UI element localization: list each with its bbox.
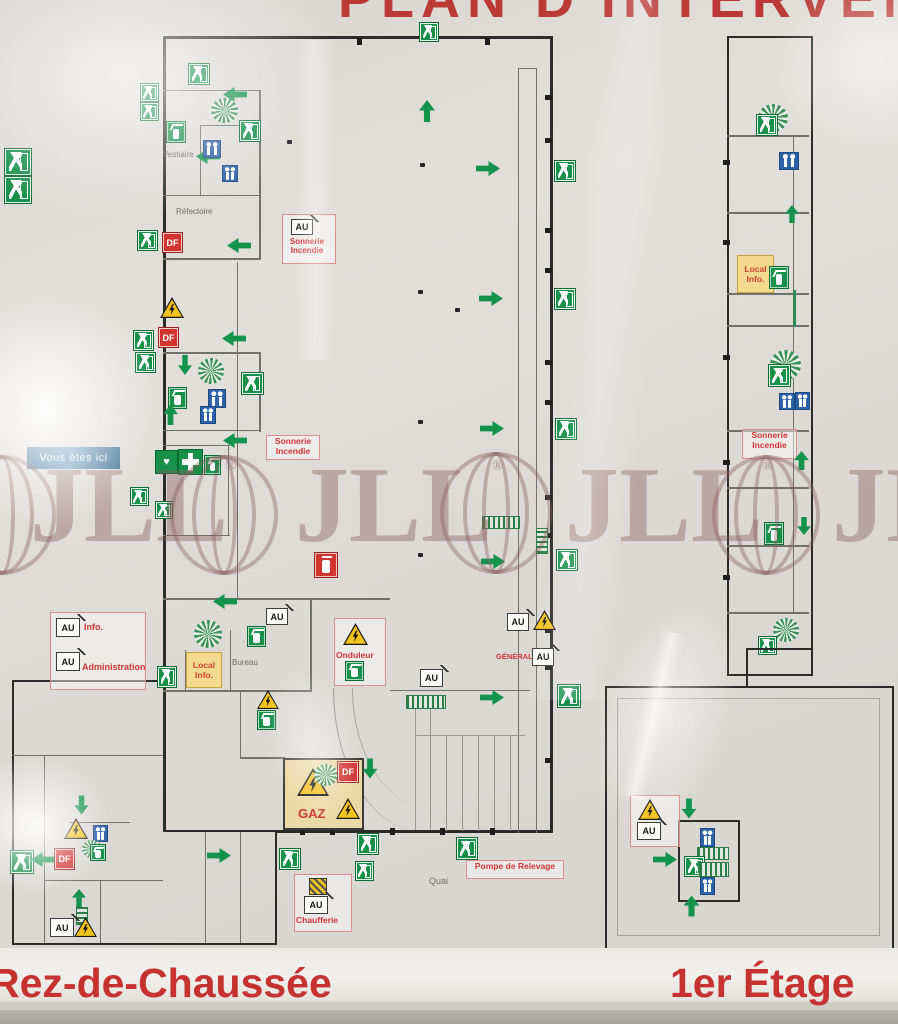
green-arrow-up-icon bbox=[71, 889, 87, 907]
wall-thin bbox=[44, 755, 45, 943]
wall-thin bbox=[163, 258, 261, 260]
spiral-staircase-icon bbox=[314, 764, 338, 786]
corridor-line bbox=[536, 68, 537, 833]
extinguisher-icon bbox=[257, 710, 276, 730]
evacuation-plan-photo: PLAN D'INTERVENTION bbox=[0, 0, 898, 1024]
wall-segment bbox=[746, 648, 748, 688]
door-tick bbox=[545, 268, 552, 273]
green-arrow-right-icon bbox=[207, 847, 231, 864]
door-tick bbox=[485, 38, 490, 45]
exit-sign-icon bbox=[4, 148, 32, 176]
fire-alarm-text: Sonnerie Incendie bbox=[285, 237, 329, 255]
exit-sign-icon bbox=[555, 418, 577, 440]
room-label: Bureau bbox=[232, 658, 258, 667]
jll-globe-watermark bbox=[170, 455, 278, 575]
floor-dot bbox=[420, 163, 425, 167]
table-edge bbox=[0, 1010, 898, 1024]
wall-thin bbox=[12, 755, 163, 756]
au-callpoint-badge: AU bbox=[507, 613, 529, 631]
dock-line bbox=[415, 735, 525, 736]
room-label: Vestiaire bbox=[163, 150, 194, 159]
green-arrow-left-icon bbox=[227, 237, 251, 254]
df-damper-badge: DF bbox=[54, 848, 75, 870]
door-tick bbox=[723, 160, 730, 165]
door-tick bbox=[723, 575, 730, 580]
wall-thin bbox=[163, 195, 260, 196]
general-text: GÉNÉRAL bbox=[496, 652, 533, 661]
green-arrow-right-icon bbox=[480, 689, 504, 706]
door-tick bbox=[545, 400, 552, 405]
exit-sign-icon bbox=[419, 22, 439, 42]
exit-sign-icon bbox=[157, 666, 177, 688]
crease-highlight bbox=[523, 0, 687, 700]
au-callpoint-badge: AU bbox=[637, 822, 661, 840]
local-info-label: Local Info. bbox=[186, 652, 222, 688]
dock-line bbox=[494, 735, 495, 831]
extinguisher-icon bbox=[90, 844, 106, 861]
exit-sign-icon bbox=[279, 848, 301, 870]
administration-text: Administration bbox=[82, 662, 146, 672]
exit-sign-icon bbox=[4, 176, 32, 204]
exit-sign-icon bbox=[756, 114, 778, 136]
pump-label: Pompe de Relevage bbox=[466, 860, 564, 879]
door-tick bbox=[490, 828, 495, 835]
floor-dot bbox=[287, 140, 292, 144]
door-tick bbox=[357, 38, 362, 45]
door-tick bbox=[440, 828, 445, 835]
wc-icon bbox=[93, 825, 108, 842]
wall-segment bbox=[163, 830, 277, 832]
corridor-line bbox=[518, 68, 519, 833]
wall-thin bbox=[163, 598, 390, 600]
wc-icon bbox=[779, 152, 799, 170]
door-tick bbox=[723, 240, 730, 245]
wall-thin bbox=[230, 630, 231, 690]
door-tick bbox=[545, 360, 552, 365]
au-callpoint-badge: AU bbox=[532, 648, 554, 666]
wall-segment bbox=[12, 680, 14, 945]
exit-sign-icon bbox=[456, 837, 478, 860]
green-arrow-up-icon bbox=[418, 100, 436, 122]
door-tick bbox=[545, 228, 552, 233]
exit-sign-icon bbox=[758, 636, 777, 655]
wall-thin bbox=[240, 757, 285, 759]
spiral-staircase-icon bbox=[194, 620, 222, 648]
spiral-staircase-icon bbox=[198, 358, 224, 384]
floor-dot bbox=[455, 308, 460, 312]
exit-sign-icon bbox=[554, 288, 576, 310]
wall-thin bbox=[163, 90, 260, 91]
wc-icon bbox=[700, 877, 715, 895]
wall-segment bbox=[12, 943, 277, 945]
wc-icon bbox=[779, 393, 795, 410]
au-callpoint-badge: AU bbox=[266, 608, 288, 625]
exit-sign-icon bbox=[241, 372, 264, 395]
wall-thin bbox=[310, 598, 312, 692]
au-callpoint-badge: AU bbox=[56, 618, 80, 637]
green-arrow-left-icon bbox=[31, 851, 55, 868]
door-tick bbox=[723, 355, 730, 360]
green-arrow-right-icon bbox=[479, 290, 503, 307]
dock-line bbox=[510, 735, 511, 831]
door-tick bbox=[545, 758, 552, 763]
wall-segment bbox=[275, 830, 277, 945]
wall-thin bbox=[727, 325, 809, 327]
exit-sign-icon bbox=[140, 102, 159, 121]
exit-sign-icon bbox=[133, 330, 154, 351]
ups-text: Onduleur bbox=[336, 650, 374, 660]
boiler-text: Chaufferie bbox=[296, 915, 338, 925]
ground-floor-label: Rez-de-Chaussée bbox=[0, 960, 332, 1007]
exit-sign-icon bbox=[137, 230, 158, 251]
room-label: Quai bbox=[429, 876, 448, 886]
staircase-icon bbox=[699, 862, 729, 877]
dock-line bbox=[462, 735, 463, 831]
jll-globe-watermark bbox=[440, 452, 552, 574]
green-arrow-right-icon bbox=[476, 160, 500, 177]
wall-thin bbox=[240, 832, 241, 943]
exit-sign-icon bbox=[355, 861, 374, 881]
wall-thin bbox=[163, 430, 260, 431]
info-text: Info. bbox=[84, 622, 103, 632]
wc-icon bbox=[203, 140, 221, 158]
dock-line bbox=[478, 735, 479, 831]
df-damper-badge: DF bbox=[337, 761, 359, 783]
exit-sign-icon bbox=[768, 364, 791, 387]
gas-text: GAZ bbox=[298, 806, 325, 821]
green-arrow-right-icon bbox=[480, 420, 504, 437]
wc-icon bbox=[700, 828, 715, 847]
df-damper-badge: DF bbox=[162, 232, 183, 253]
staircase-icon bbox=[406, 695, 446, 709]
wc-icon bbox=[222, 165, 238, 182]
dock-line bbox=[446, 735, 447, 831]
exit-sign-icon bbox=[554, 160, 576, 182]
wall-thin bbox=[205, 832, 206, 943]
wc-icon bbox=[200, 406, 216, 424]
green-arrow-down-icon bbox=[177, 355, 193, 375]
room-label: Réfectoire bbox=[176, 207, 212, 216]
extinguisher-icon bbox=[769, 266, 789, 289]
exit-sign-icon bbox=[10, 850, 34, 874]
door-tick bbox=[390, 828, 395, 835]
wall-thin bbox=[163, 690, 312, 692]
green-arrow-left-icon bbox=[222, 330, 246, 347]
first-floor-label: 1er Étage bbox=[670, 960, 855, 1007]
exit-sign-icon bbox=[557, 684, 581, 708]
wall-thin bbox=[70, 822, 130, 823]
wall-thin bbox=[163, 352, 260, 354]
exit-sign-icon bbox=[140, 83, 159, 102]
extinguisher-icon bbox=[247, 626, 266, 647]
wall-thin bbox=[200, 125, 201, 195]
warning-electric-icon bbox=[257, 690, 279, 709]
wc-icon bbox=[795, 392, 810, 410]
wall-thin bbox=[259, 90, 261, 260]
au-callpoint-badge: AU bbox=[291, 219, 313, 235]
df-damper-badge: DF bbox=[158, 327, 179, 348]
extinguisher-icon bbox=[345, 661, 364, 681]
door-tick bbox=[545, 95, 552, 100]
exit-sign-icon bbox=[135, 352, 156, 373]
au-callpoint-badge: AU bbox=[420, 669, 443, 687]
exit-sign-icon bbox=[357, 833, 379, 855]
exit-sign-icon bbox=[239, 120, 261, 142]
au-callpoint-badge: AU bbox=[50, 918, 74, 937]
wall-thin bbox=[727, 293, 809, 295]
extinguisher-icon bbox=[166, 121, 186, 143]
jll-watermark: JLL bbox=[832, 452, 898, 560]
wall-thin bbox=[100, 880, 101, 943]
exit-sign-icon bbox=[188, 63, 210, 85]
floor-dot bbox=[418, 290, 423, 294]
wall-segment bbox=[746, 648, 812, 650]
spiral-staircase-icon bbox=[211, 98, 238, 123]
wall-segment bbox=[550, 36, 553, 833]
au-callpoint-badge: AU bbox=[56, 652, 80, 671]
green-arrow-left-icon bbox=[213, 593, 237, 610]
floor-dot bbox=[418, 420, 423, 424]
evac-route-line bbox=[793, 290, 796, 326]
door-tick bbox=[545, 138, 552, 143]
glare bbox=[0, 0, 340, 220]
crease-highlight bbox=[295, 40, 335, 360]
jll-globe-watermark bbox=[712, 455, 820, 575]
wall-thin bbox=[240, 690, 241, 758]
green-arrow-down-icon bbox=[74, 796, 90, 815]
wall-thin bbox=[727, 612, 809, 614]
wall-thin bbox=[44, 880, 163, 881]
au-callpoint-badge: AU bbox=[304, 896, 328, 914]
corridor-line bbox=[518, 68, 537, 69]
